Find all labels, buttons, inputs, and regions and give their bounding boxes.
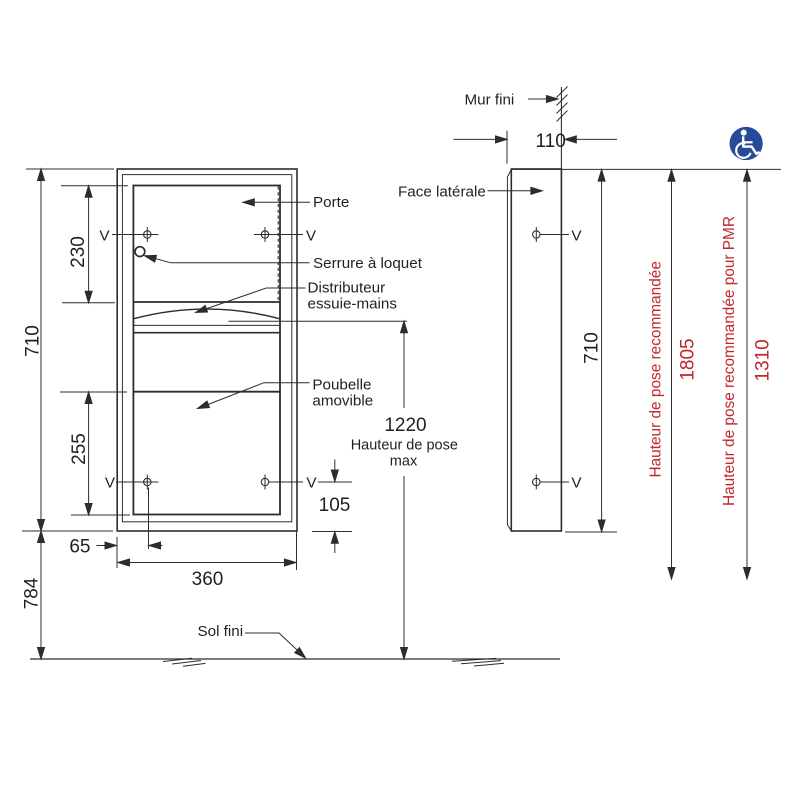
- svg-text:1220: 1220: [384, 415, 426, 436]
- svg-text:essuie-mains: essuie-mains: [308, 296, 398, 313]
- svg-text:Serrure à loquet: Serrure à loquet: [313, 255, 423, 272]
- svg-text:Hauteur de pose: Hauteur de pose: [351, 438, 458, 454]
- svg-text:V: V: [99, 227, 110, 244]
- svg-text:Face latérale: Face latérale: [398, 184, 486, 201]
- svg-text:Hauteur de pose recommandée po: Hauteur de pose recommandée pour PMR: [721, 216, 738, 506]
- svg-text:710: 710: [582, 332, 603, 364]
- svg-text:710: 710: [23, 325, 44, 357]
- svg-text:V: V: [105, 474, 116, 491]
- svg-text:230: 230: [68, 236, 89, 268]
- svg-text:Poubelle: Poubelle: [312, 376, 371, 393]
- svg-text:Hauteur de pose recommandée: Hauteur de pose recommandée: [648, 261, 665, 477]
- svg-text:Porte: Porte: [313, 194, 349, 211]
- svg-text:V: V: [571, 474, 582, 491]
- svg-text:V: V: [306, 227, 317, 244]
- svg-text:255: 255: [69, 433, 90, 465]
- svg-text:Mur fini: Mur fini: [465, 92, 515, 109]
- svg-text:Distributeur: Distributeur: [308, 280, 386, 297]
- svg-text:784: 784: [22, 577, 43, 609]
- svg-text:max: max: [390, 454, 418, 470]
- svg-text:1310: 1310: [752, 339, 773, 381]
- svg-text:65: 65: [69, 537, 90, 558]
- svg-text:V: V: [571, 227, 582, 244]
- svg-text:amovible: amovible: [312, 393, 373, 410]
- svg-text:V: V: [306, 474, 317, 491]
- svg-text:Sol fini: Sol fini: [198, 623, 244, 640]
- svg-text:360: 360: [192, 569, 224, 590]
- svg-text:105: 105: [319, 495, 351, 516]
- svg-text:110: 110: [536, 131, 566, 152]
- svg-text:1805: 1805: [678, 338, 699, 380]
